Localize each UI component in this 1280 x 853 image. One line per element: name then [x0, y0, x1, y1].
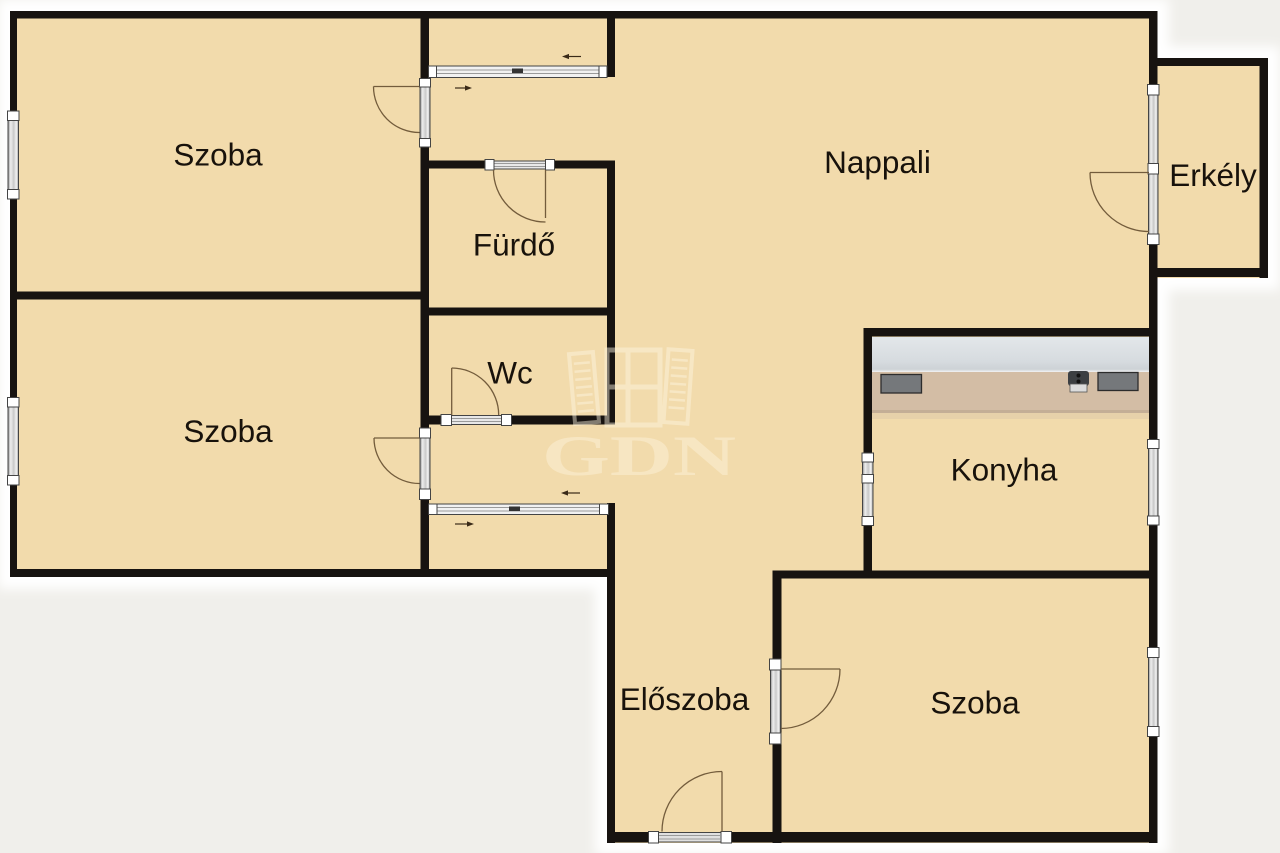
svg-text:Szoba: Szoba: [173, 137, 263, 173]
svg-text:Fürdő: Fürdő: [473, 227, 555, 263]
svg-text:Konyha: Konyha: [951, 452, 1058, 488]
svg-text:GDN: GDN: [542, 425, 736, 488]
svg-text:Szoba: Szoba: [930, 685, 1020, 721]
svg-text:Erkély: Erkély: [1169, 157, 1257, 193]
svg-text:Wc: Wc: [487, 355, 532, 391]
svg-text:Nappali: Nappali: [824, 144, 931, 180]
svg-text:Szoba: Szoba: [183, 413, 273, 449]
svg-text:Előszoba: Előszoba: [620, 681, 750, 717]
